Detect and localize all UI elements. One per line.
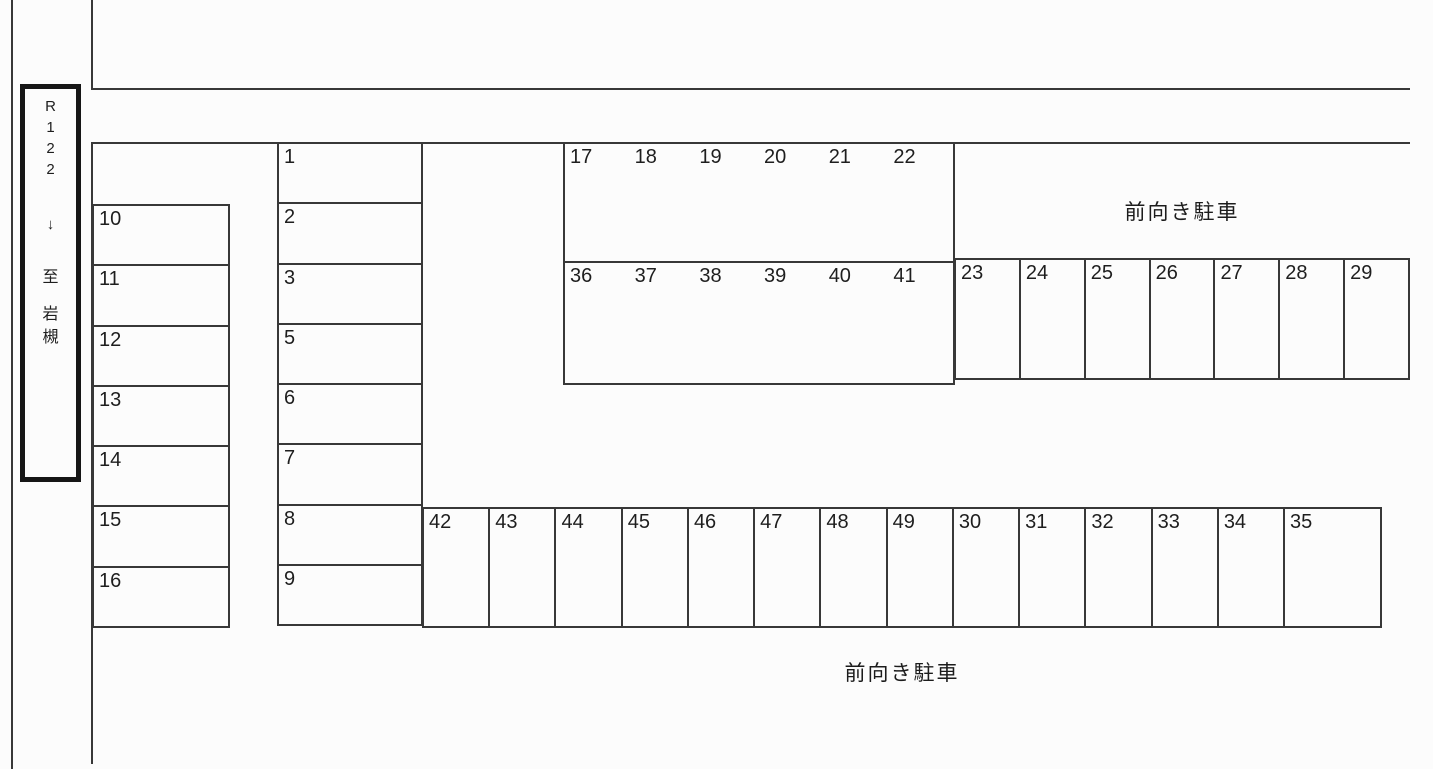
parking-space: 28 [1278,260,1343,378]
parking-space: 36 [565,263,630,383]
front-facing-parking-label-bottom: 前向き駐車 [422,657,1382,687]
space-number: 25 [1086,260,1113,283]
route-number: R122 [25,96,76,180]
space-number: 43 [490,509,517,532]
space-number: 29 [1345,260,1372,283]
parking-space: 42 [424,509,488,626]
space-number: 23 [956,260,983,283]
parking-space: 1 [279,144,421,202]
space-number: 30 [954,509,981,532]
parking-lot-diagram: R122 ↓ 至岩槻 10 11 12 13 14 15 16 1 2 3 [0,0,1433,769]
parking-space: 14 [94,445,228,505]
parking-space: 19 [694,144,759,261]
parking-space: 45 [621,509,687,626]
space-number: 14 [94,447,121,470]
parking-space: 46 [687,509,753,626]
parking-space: 38 [694,263,759,383]
parking-space: 9 [279,564,421,624]
parking-space: 10 [94,206,228,264]
space-number: 3 [279,265,295,288]
destination-text: 至岩槻 [25,267,76,348]
parking-space: 5 [279,323,421,383]
space-number: 6 [279,385,295,408]
space-number: 10 [94,206,121,229]
parking-space: 26 [1149,260,1214,378]
parking-block-upper-grid: 17 18 19 20 21 22 36 37 38 39 40 [563,142,955,385]
space-number: 11 [94,266,120,289]
space-number: 36 [565,263,592,286]
parking-space: 18 [630,144,695,261]
space-number: 9 [279,566,295,589]
space-number: 26 [1151,260,1178,283]
space-number: 5 [279,325,295,348]
parking-space: 34 [1217,509,1283,626]
parking-space: 48 [819,509,885,626]
space-number: 49 [888,509,915,532]
space-number: 15 [94,507,121,530]
parking-space: 47 [753,509,819,626]
space-number: 38 [694,263,721,286]
route-number-char: R [25,96,76,117]
road-top-edge-line [91,88,1410,90]
space-number: 24 [1021,260,1048,283]
parking-space: 11 [94,264,228,324]
space-number: 18 [630,144,657,167]
space-number: 47 [755,509,782,532]
space-number: 19 [694,144,721,167]
space-number: 28 [1280,260,1307,283]
space-number: 45 [623,509,650,532]
space-number: 22 [888,144,915,167]
parking-space: 33 [1151,509,1217,626]
parking-space: 31 [1018,509,1084,626]
space-number: 35 [1285,509,1312,532]
parking-block-right-row: 23 24 25 26 27 28 29 [954,258,1410,380]
space-number: 41 [888,263,915,286]
parking-space: 7 [279,443,421,503]
parking-space: 12 [94,325,228,385]
space-number: 16 [94,568,121,591]
route-number-char: 1 [25,117,76,138]
space-number: 32 [1086,509,1113,532]
parking-space: 8 [279,504,421,564]
route-number-char: 2 [25,159,76,180]
parking-space: 40 [824,263,889,383]
parking-space: 43 [488,509,554,626]
route-number-char: 2 [25,138,76,159]
parking-block-bottom-row: 42 43 44 45 46 47 48 49 30 31 32 33 34 3… [422,507,1382,628]
space-number: 13 [94,387,121,410]
front-facing-parking-label-top: 前向き駐車 [954,196,1410,226]
parking-block-left-column: 10 11 12 13 14 15 16 [92,204,230,628]
space-number: 34 [1219,509,1246,532]
parking-space: 3 [279,263,421,323]
space-number: 27 [1215,260,1242,283]
destination-char: 岩 [25,304,76,325]
parking-space: 2 [279,202,421,262]
space-number: 42 [424,509,451,532]
parking-space: 29 [1343,260,1408,378]
parking-row-36-41: 36 37 38 39 40 41 [565,261,953,383]
parking-space: 44 [554,509,620,626]
parking-space: 37 [630,263,695,383]
parking-space: 25 [1084,260,1149,378]
parking-space: 32 [1084,509,1150,626]
parking-space: 15 [94,505,228,565]
parking-block-inner-column: 1 2 3 5 6 7 8 9 [277,142,423,626]
road-left-edge-line [11,0,13,769]
destination-char: 槻 [25,327,76,348]
space-number: 8 [279,506,295,529]
space-number: 12 [94,327,121,350]
space-number: 37 [630,263,657,286]
space-number: 1 [279,144,295,167]
space-number: 21 [824,144,851,167]
parking-space: 6 [279,383,421,443]
down-arrow-icon: ↓ [25,214,76,235]
parking-space: 20 [759,144,824,261]
space-number: 40 [824,263,851,286]
space-number: 48 [821,509,848,532]
space-number: 20 [759,144,786,167]
parking-space: 16 [94,566,228,626]
parking-space: 17 [565,144,630,261]
parking-space: 22 [888,144,953,261]
space-number: 17 [565,144,592,167]
parking-space: 39 [759,263,824,383]
space-number: 46 [689,509,716,532]
space-number: 2 [279,204,295,227]
space-number: 33 [1153,509,1180,532]
parking-space: 30 [952,509,1018,626]
route-122-road-sign: R122 ↓ 至岩槻 [20,84,81,482]
parking-space: 49 [886,509,952,626]
destination-char: 至 [25,267,76,288]
space-number: 39 [759,263,786,286]
space-number: 31 [1020,509,1047,532]
parking-space: 21 [824,144,889,261]
parking-space: 41 [888,263,953,383]
parking-space: 24 [1019,260,1084,378]
parking-space: 13 [94,385,228,445]
space-number: 7 [279,445,295,468]
parking-row-17-22: 17 18 19 20 21 22 [565,144,953,261]
parking-space: 35 [1283,509,1380,626]
parking-space: 23 [956,260,1019,378]
space-number: 44 [556,509,583,532]
parking-space: 27 [1213,260,1278,378]
road-corner-vertical-line [91,0,93,90]
